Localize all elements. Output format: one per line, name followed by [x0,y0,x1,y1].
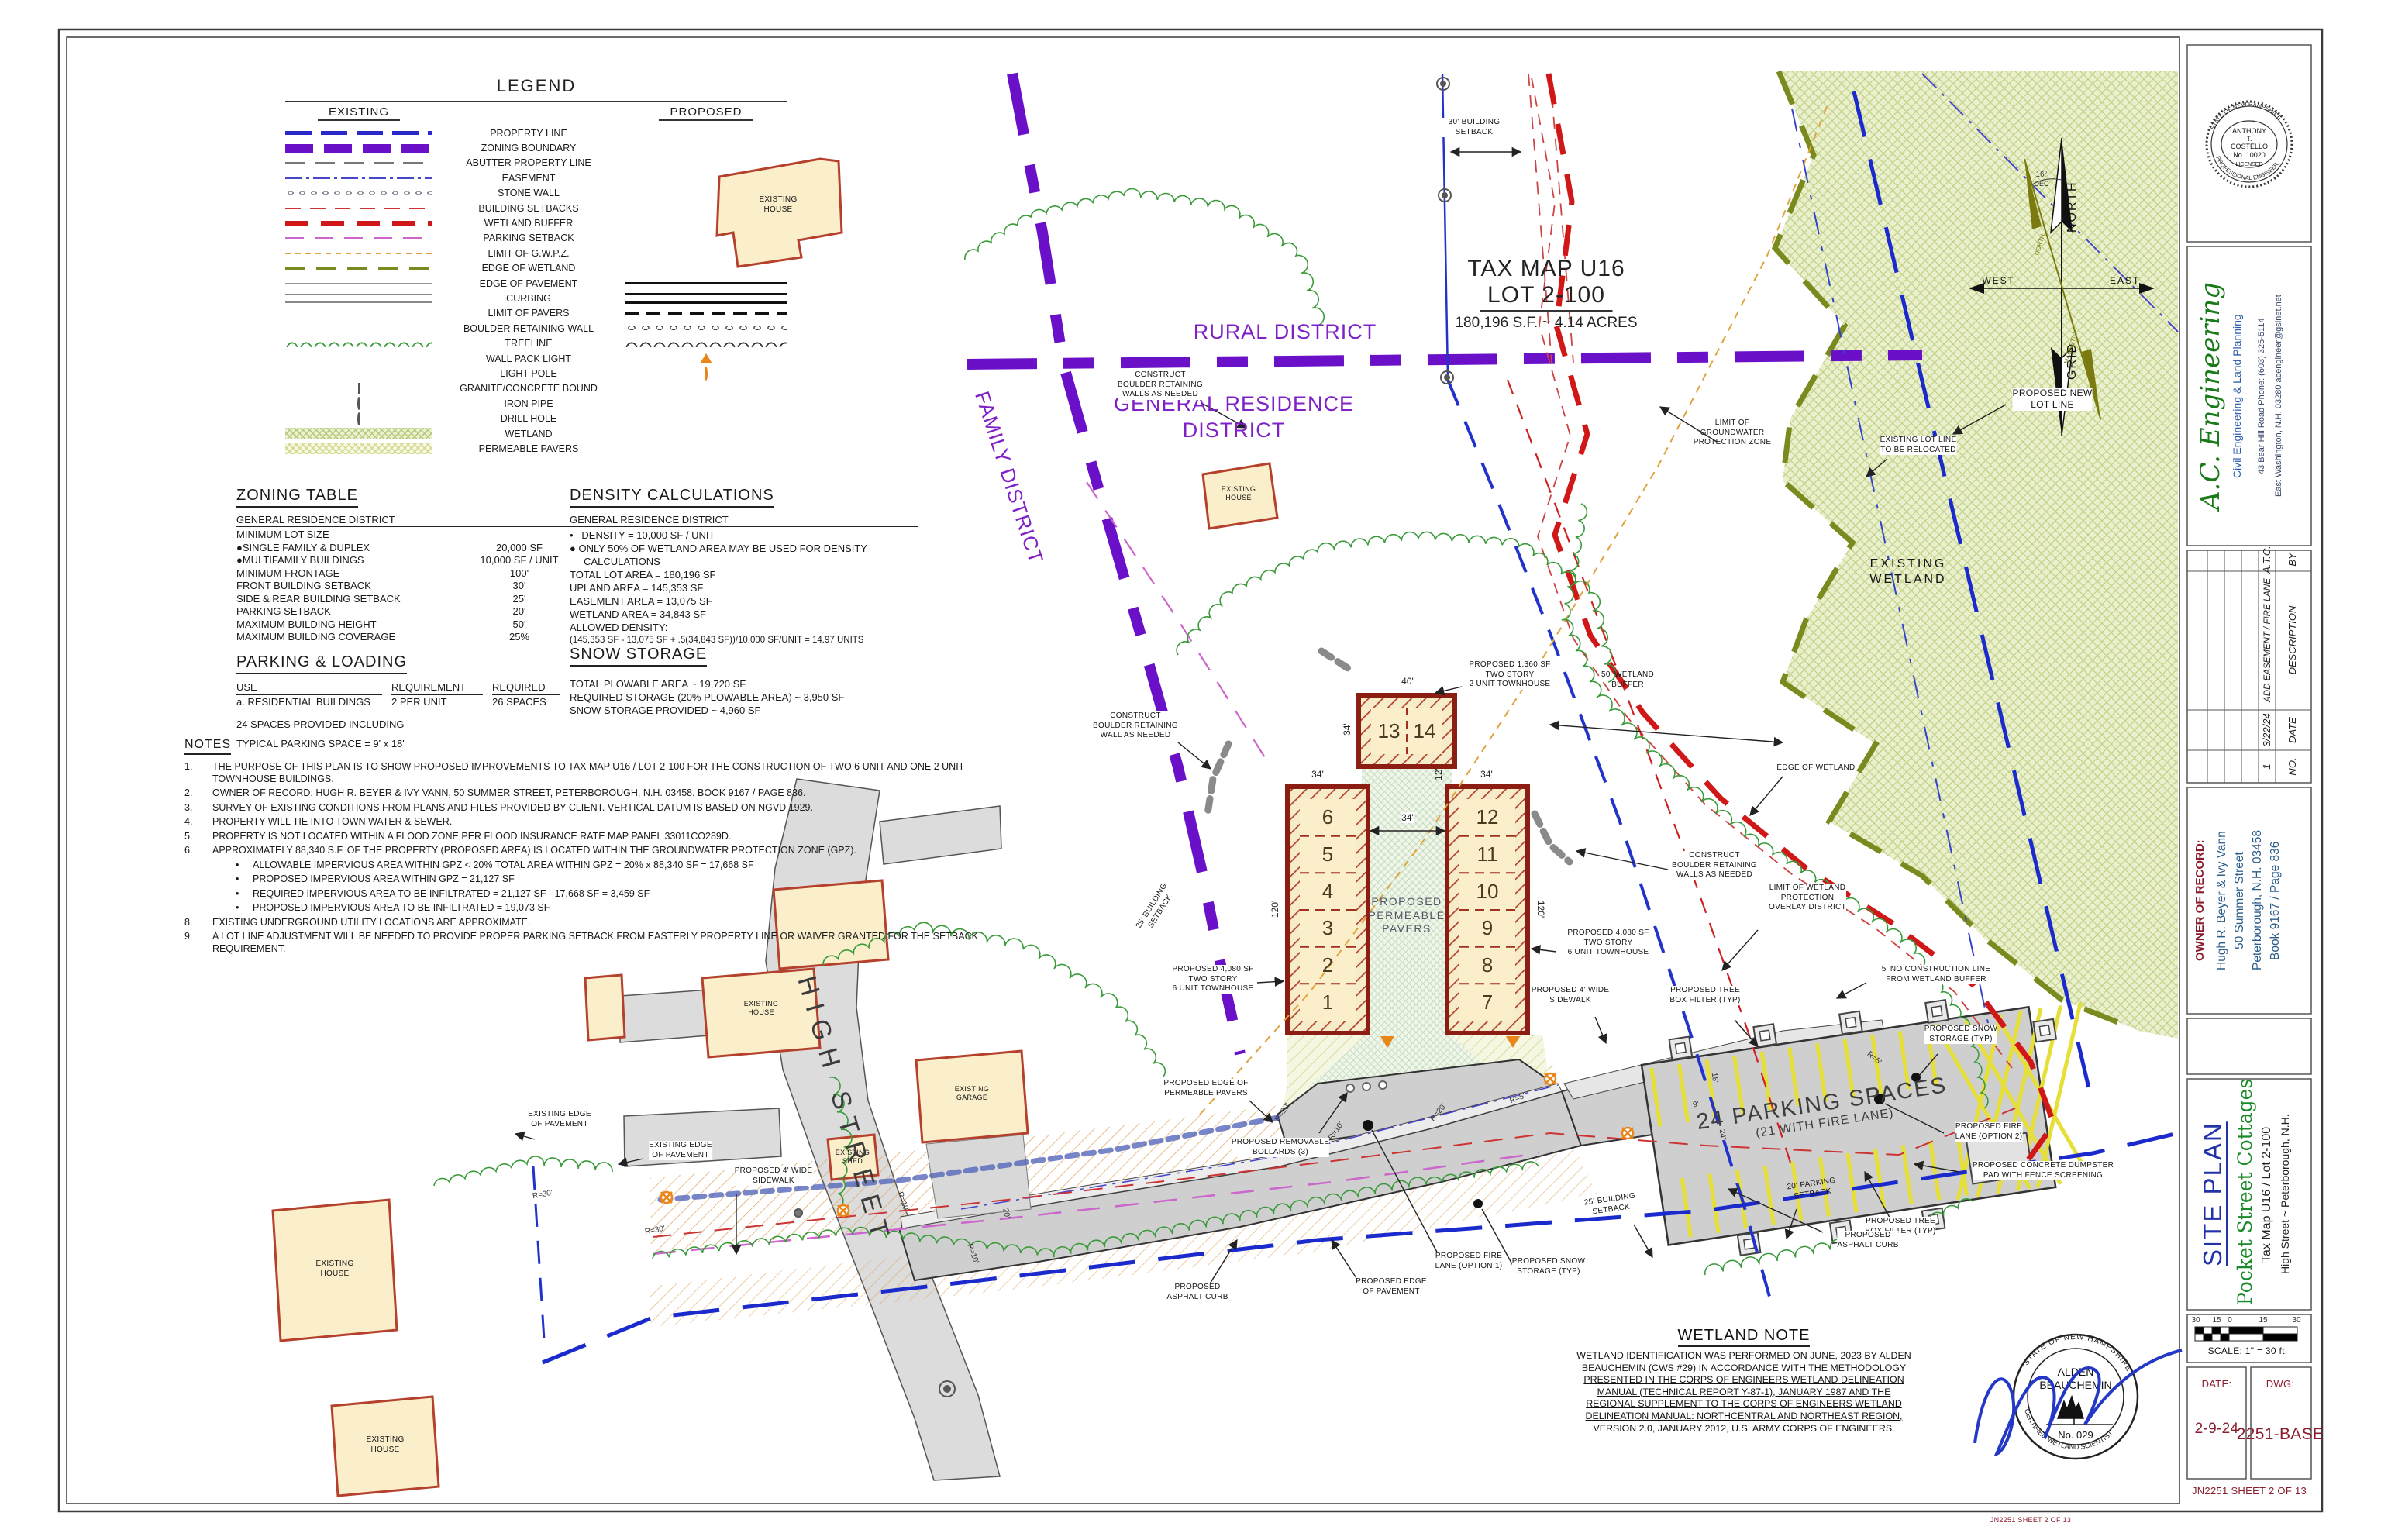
svg-text:DEC: DEC [2034,180,2049,188]
density-line: EASEMENT AREA = 13,075 SF [570,594,918,608]
legend-row: ABUTTER PROPERTY LINE [285,156,787,171]
zoning-row-value [461,529,577,542]
existing-house-label-4: EXISTING HOUSE [315,1259,353,1279]
unit-number: 1 [1300,984,1356,1021]
wetland-note-title: WETLAND NOTE [1678,1327,1811,1347]
edge-permeable-pavers-label: PROPOSED EDGE OF PERMEABLE PAVERS [1163,1079,1248,1098]
scale-bar [2195,1327,2297,1341]
legend-proposed-swatch [625,339,787,347]
notes: NOTES 1. THE PURPOSE OF THIS PLAN IS TO … [184,738,991,957]
legend-item-label: STONE WALL [432,188,625,198]
legend-item-label: LIGHT POLE [432,368,625,379]
scale-label: SCALE: 1" = 30 ft. [2208,1345,2288,1357]
svg-text:NO.: NO. [2286,757,2298,775]
proposed-edge-pavement-label: PROPOSED EDGE OF PAVEMENT [1356,1277,1427,1297]
pl-row-reqd: 26 SPACES [492,695,570,708]
density-line: • DENSITY = 10,000 SF / UNIT [570,529,918,542]
svg-text:NORTH: NORTH [2066,181,2079,233]
site-plan-sheet: 16° DEC NORTH GRID WEST EAST NORTH MAGNE… [0,0,2381,1540]
legend-row: ZONING BOUNDARY [285,140,787,155]
svg-text:3/22/24: 3/22/24 [2261,713,2272,746]
legend-row: TREELINE [285,336,787,350]
legend-item-label: PROPERTY LINE [432,128,625,139]
unit-number: 10 [1459,873,1515,910]
dim-18: 18' [1710,1072,1720,1083]
date-label: DATE: [2202,1378,2232,1390]
svg-text:ANTHONY: ANTHONY [2232,127,2266,135]
legend-row: DRILL HOLE [285,411,787,425]
legend-item-label: TREELINE [432,338,625,349]
svg-text:WEST: WEST [1982,275,2015,286]
zoning-row-label: PARKING SETBACK [236,605,461,618]
note-item: • PROPOSED IMPERVIOUS AREA TO BE INFILTR… [236,902,991,915]
unit-number: 8 [1459,947,1515,984]
zoning-row: SIDE & REAR BUILDING SETBACK 25' [236,593,577,606]
rural-district-label: RURAL DISTRICT [1194,319,1377,346]
wetland-note-line: DELINEATION MANUAL: NORTHCENTRAL AND NOR… [1527,1411,1961,1423]
wetland-note-line: PRESENTED IN THE CORPS OF ENGINEERS WETL… [1527,1374,1961,1387]
existing-house-label-3: EXISTING HOUSE [744,1000,778,1018]
building-c-units: 1314 [1371,708,1442,754]
legend-item-label: EASEMENT [432,173,625,184]
legend-existing-swatch [285,221,432,226]
legend-col-existing: EXISTING [318,105,400,121]
svg-text:16°: 16° [2035,171,2047,179]
svg-text:DATE: DATE [2286,717,2298,743]
tree-box-filter-label-a: PROPOSED TREE BOX FILTER (TYP) [1669,986,1740,1005]
unit-number: 3 [1300,910,1356,947]
zoning-district: GENERAL RESIDENCE DISTRICT [236,514,577,527]
no-construction-label: 5' NO CONSTRUCTION LINE FROM WETLAND BUF… [1882,965,1991,984]
sidewalk-label-b: PROPOSED 4' WIDE SIDEWALK [1532,986,1610,1005]
zoning-row-label: ●MULTIFAMILY BUILDINGS [236,554,461,567]
svg-text:1: 1 [2261,763,2272,769]
company-addr2: East Washington, N.H. 03280 acengineer@g… [2274,260,2286,532]
legend-row: EASEMENT [285,171,787,185]
unit-number: 11 [1459,836,1515,873]
asphalt-curb-label-a: PROPOSED ASPHALT CURB [1166,1283,1228,1302]
building-a-units: 654321 [1300,799,1356,1021]
dim-34-b: 34' [1480,769,1493,780]
svg-text:ADD EASEMENT / FIRE LANE: ADD EASEMENT / FIRE LANE [2263,578,2272,703]
pl-extra1: 24 SPACES PROVIDED INCLUDING [236,718,585,731]
owner-line: 50 Summer Street [2233,791,2251,1011]
legend-item-label: GRANITE/CONCRETE BOUND [432,383,625,394]
permeable-pavers-label: PROPOSED PERMEABLE PAVERS [1368,895,1445,936]
zoning-row-value: 20,000 SF [461,542,577,555]
pl-col-requirement: REQUIREMENT [391,680,483,695]
owner-heading: OWNER OF RECORD: [2193,791,2210,1011]
existing-wetland-label: EXISTING WETLAND [1869,556,1946,587]
legend-existing-swatch [358,383,360,394]
legend-item-label: CURBING [432,293,625,304]
svg-text:T.: T. [2246,135,2252,143]
owner-line: Peterborough, N.H. 03458 [2251,791,2269,1011]
snow-line: TOTAL PLOWABLE AREA ~ 19,720 SF [570,677,918,691]
legend-row: LIGHT POLE [285,366,787,381]
pl-col-use: USE [236,680,382,695]
legend-item-label: WETLAND BUFFER [432,218,625,229]
legend-existing-swatch [285,208,432,209]
setback30-label: 30' BUILDING SETBACK [1432,118,1517,137]
legend-row: LIMIT OF G.W.P.Z. [285,246,787,260]
legend-item-label: ZONING BOUNDARY [432,143,625,153]
svg-text:LICENSED: LICENSED [2235,162,2262,167]
legend-item-label: LIMIT OF PAVERS [432,308,625,319]
legend-row: EDGE OF PAVEMENT [285,276,787,291]
parking-loading-title: PARKING & LOADING [236,653,407,674]
unit-number: 7 [1459,984,1515,1021]
zoning-row-label: SIDE & REAR BUILDING SETBACK [236,593,461,606]
note-item: 9. A LOT LINE ADJUSTMENT WILL BE NEEDED … [184,931,991,955]
project-parcel: Tax Map U16 / Lot 2-100 [2260,1084,2277,1305]
zoning-row-value: 25% [461,631,577,644]
scale-m1: 30 [2191,1316,2200,1325]
zoning-row-label: FRONT BUILDING SETBACK [236,580,461,593]
building-b-units: 121110987 [1459,799,1515,1021]
legend-item-label: EDGE OF WETLAND [432,263,625,274]
svg-text:A.T.C.: A.T.C. [2261,546,2272,574]
project-name: Pocket Street Cottages [2234,1084,2257,1305]
legend-row: LIMIT OF PAVERS [285,306,787,321]
zoning-row-label: ●SINGLE FAMILY & DUPLEX [236,542,461,555]
sidewalk-label-a: PROPOSED 4' WIDE SIDEWALK [735,1166,813,1186]
existing-garage-label: EXISTING GARAGE [955,1085,989,1103]
legend-item-label: BUILDING SETBACKS [432,203,625,214]
pl-col-required: REQUIRED [492,680,560,695]
wetland-note-line: REGIONAL SUPPLEMENT TO THE CORPS OF ENGI… [1527,1398,1961,1411]
zoning-row-value: 10,000 SF / UNIT [461,554,577,567]
legend-row: WALL PACK LIGHT [285,351,787,366]
existing-edge-label-b: EXISTING EDGE OF PAVEMENT [649,1141,712,1160]
note-item: 2. OWNER OF RECORD: HUGH R. BEYER & IVY … [184,787,991,800]
dim-120-b: 120' [1535,901,1546,918]
legend-existing-swatch [285,253,432,254]
existing-lot-line-label: EXISTING LOT LINE TO BE RELOCATED [1880,436,1957,455]
legend-existing-swatch [285,237,432,239]
zoning-row: PARKING SETBACK 20' [236,605,577,618]
wetland-overlay-label: LIMIT OF WETLAND PROTECTION OVERLAY DIST… [1769,884,1846,913]
svg-text:No. 029: No. 029 [2058,1429,2093,1441]
existing-edge-label-a: EXISTING EDGE OF PAVEMENT [528,1110,591,1129]
scale-m4: 15 [2259,1316,2267,1325]
legend-proposed-swatch [625,293,787,304]
legend-item-label: ABUTTER PROPERTY LINE [432,157,625,168]
zoning-row-value: 50' [461,618,577,632]
wetland-note-line: VERSION 2.0, JANUARY 2012, U.S. ARMY COR… [1527,1423,1961,1435]
legend-item-label: IRON PIPE [432,398,625,409]
dim-120-a: 120' [1270,901,1280,918]
dim-34-a: 34' [1311,769,1324,780]
note-item: 8. EXISTING UNDERGROUND UTILITY LOCATION… [184,917,991,929]
dim-40: 40' [1401,676,1414,687]
legend-item-label: PERMEABLE PAVERS [432,443,625,454]
legend-row: PROPERTY LINE [285,126,787,140]
legend-proposed-swatch [625,324,787,332]
pl-row-use: a. RESIDENTIAL BUILDINGS [236,695,391,708]
company-name: A.C. Engineering [2195,256,2231,536]
legend-proposed-swatch [625,282,787,284]
legend-row: BOULDER RETAINING WALL [285,321,787,336]
dim-34-c: 34' [1342,723,1352,736]
owner-line: Book 9167 / Page 836 [2269,791,2286,1011]
dwg-value: 2251-BASE [2237,1425,2324,1445]
dim-34-mid: 34' [1401,812,1414,823]
density-district: GENERAL RESIDENCE DISTRICT [570,514,918,527]
unit-number: 6 [1300,799,1356,836]
density-line: ALLOWED DENSITY: [570,621,918,634]
zoning-row: FRONT BUILDING SETBACK 30' [236,580,577,593]
wetland-stamp: STATE OF NEW HAMPSHIRE CERTIFIED WETLAND… [1975,1333,2182,1459]
wetland-note-line: MANUAL (TECHNICAL REPORT Y-87-1), JANUAR… [1527,1387,1961,1399]
legend-existing-swatch [285,294,432,303]
note-item: 3. SURVEY OF EXISTING CONDITIONS FROM PL… [184,802,991,815]
townhouse6-label-a: PROPOSED 4,080 SF TWO STORY 6 UNIT TOWNH… [1567,928,1649,958]
date-value: 2-9-24 [2195,1420,2239,1438]
scale-m5: 30 [2292,1316,2300,1325]
svg-text:COSTELLO: COSTELLO [2231,143,2268,150]
legend-existing-swatch [285,443,432,454]
snow-line: SNOW STORAGE PROVIDED ~ 4,960 SF [570,704,918,717]
legend-row: WETLAND BUFFER [285,215,787,230]
pl-row-req: 2 PER UNIT [391,695,492,708]
zoning-row-label: MINIMUM FRONTAGE [236,567,461,581]
unit-number: 2 [1300,947,1356,984]
zoning-row-label: MINIMUM LOT SIZE [236,529,461,542]
zoning-row: ●MULTIFAMILY BUILDINGS 10,000 SF / UNIT [236,554,577,567]
boulder-wall-label-b: CONSTRUCT BOULDER RETAINING WALL AS NEED… [1093,711,1178,741]
legend-item-label: WALL PACK LIGHT [432,353,625,364]
unit-number: 9 [1459,910,1515,947]
dim-24: 24' [1718,1128,1728,1139]
dumpster-label: PROPOSED CONCRETE DUMPSTER PAD WITH FENC… [1973,1161,2114,1180]
legend-row: BUILDING SETBACKS [285,201,787,215]
company-tagline: Civil Engineering & Land Planning [2231,260,2246,532]
density-line: ● ONLY 50% OF WETLAND AREA MAY BE USED F… [570,542,918,555]
legend-title: LEGEND [285,76,787,96]
notes-title: NOTES [184,738,231,755]
legend-row: GRANITE/CONCRETE BOUND [285,381,787,396]
unit-number: 14 [1407,708,1442,754]
legend-row: WETLAND [285,426,787,441]
density-line: UPLAND AREA = 145,353 SF [570,581,918,594]
parking-loading: PARKING & LOADING USE REQUIREMENT REQUIR… [236,653,585,750]
legend-existing-swatch [285,144,432,153]
dim-9: 9' [1693,1101,1700,1110]
company-addr1: 43 Bear Hill Road Phone: (603) 325-5114 [2257,260,2269,532]
buffer50-label: 50' WETLAND BUFFER [1601,670,1654,690]
snow-line: REQUIRED STORAGE (20% PLOWABLE AREA) ~ 3… [570,691,918,704]
unit-number: 4 [1300,873,1356,910]
zoning-title: ZONING TABLE [236,487,358,508]
existing-house-label-5: EXISTING HOUSE [366,1435,404,1455]
zoning-row-value: 25' [461,593,577,606]
legend-col-proposed: PROPOSED [659,105,753,121]
unit-number: 12 [1459,799,1515,836]
zoning-row-label: MAXIMUM BUILDING COVERAGE [236,631,461,644]
zoning-row-value: 100' [461,567,577,581]
zoning-row: ●SINGLE FAMILY & DUPLEX 20,000 SF [236,542,577,555]
bollards-label: PROPOSED REMOVABLE BOLLARDS (3) [1232,1138,1329,1157]
fire-lane1-label: PROPOSED FIRE LANE (OPTION 1) [1435,1252,1503,1271]
zoning-row: MINIMUM FRONTAGE 100' [236,567,577,581]
svg-text:BY: BY [2286,552,2298,567]
unit-number: 13 [1371,708,1407,754]
zoning-row-label: MAXIMUM BUILDING HEIGHT [236,618,461,632]
fire-lane2-label: PROPOSED FIRE LANE (OPTION 2) [1955,1122,2023,1142]
note-item: 4. PROPERTY WILL TIE INTO TOWN WATER & S… [184,816,991,829]
edge-of-wetland-label: EDGE OF WETLAND [1776,763,1855,773]
legend-item-label: LIMIT OF G.W.P.Z. [432,248,625,259]
note-item: 1. THE PURPOSE OF THIS PLAN IS TO SHOW P… [184,761,991,785]
legend-existing-swatch [285,428,432,439]
unit-number: 5 [1300,836,1356,873]
snow-storage-label-a: PROPOSED SNOW STORAGE (TYP) [1924,1025,1997,1044]
svg-text:EAST: EAST [2110,275,2140,286]
zoning-row: MAXIMUM BUILDING HEIGHT 50' [236,618,577,632]
legend-existing-swatch [285,177,432,180]
legend-row: IRON PIPE [285,396,787,411]
legend-existing-swatch [285,131,432,135]
legend-existing-swatch [285,190,432,197]
owner-line: Hugh R. Beyer & Ivy Vann [2215,791,2233,1011]
note-item: • PROPOSED IMPERVIOUS AREA WITHIN GPZ = … [236,873,991,886]
wetland-note-line: WETLAND IDENTIFICATION WAS PERFORMED ON … [1527,1350,1961,1363]
wetland-note: WETLAND NOTE WETLAND IDENTIFICATION WAS … [1527,1327,1961,1435]
sheet-footer-tiny: JN2251 SHEET 2 OF 13 [1990,1516,2071,1524]
density-line: TOTAL LOT AREA = 180,196 SF [570,568,918,581]
project-location: High Street ~ Peterborough, N.H. [2279,1084,2294,1305]
legend-proposed-swatch [625,312,787,315]
snow-title: SNOW STORAGE [570,646,707,667]
note-item: • ALLOWABLE IMPERVIOUS AREA WITHIN GPZ <… [236,860,991,872]
scale-m2: 15 [2212,1316,2221,1325]
legend-item-label: EDGE OF PAVEMENT [432,278,625,289]
zoning-row: MINIMUM LOT SIZE [236,529,577,542]
legend-row: CURBING [285,291,787,305]
legend-item-label: WETLAND [432,429,625,439]
zoning-row-value: 30' [461,580,577,593]
owner-lines: Hugh R. Beyer & Ivy Vann50 Summer Street… [2215,791,2286,1011]
boulder-wall-label-c: CONSTRUCT BOULDER RETAINING WALLS AS NEE… [1672,851,1757,880]
note-item: 6. APPROXIMATELY 88,340 S.F. OF THE PROP… [184,845,991,857]
zoning-row-value: 20' [461,605,577,618]
legend-item-label: BOULDER RETAINING WALL [432,323,625,334]
dim-12: 12' [1433,768,1444,780]
snow-storage-label-b: PROPOSED SNOW STORAGE (TYP) [1512,1257,1585,1276]
parcel-title: TAX MAP U16 LOT 2-100 180,196 S.F. ~ 4.1… [1455,256,1637,332]
legend-existing-swatch [285,339,432,347]
dwg-label: DWG: [2266,1378,2295,1390]
legend-existing-swatch [285,267,432,270]
svg-text:DESCRIPTION: DESCRIPTION [2286,605,2298,674]
existing-house-label-2: EXISTING HOUSE [1222,485,1256,503]
legend-proposed-swatch [700,353,712,363]
legend-existing-swatch [285,283,432,284]
svg-text:No. 10020: No. 10020 [2233,151,2266,159]
sheet-title: SITE PLAN [2198,1084,2229,1305]
legend-existing-swatch [285,162,432,164]
legend-row: EDGE OF WETLAND [285,261,787,276]
proposed-new-lot-line-label: PROPOSED NEW LOT LINE [2013,388,2093,411]
wetland-note-line: BEAUCHEMIN (CWS #29) IN ACCORDANCE WITH … [1527,1363,1961,1375]
boulder-wall-label-a: CONSTRUCT BOULDER RETAINING WALLS AS NEE… [1118,370,1203,400]
legend-row: STONE WALL [285,186,787,201]
note-item: • REQUIRED IMPERVIOUS AREA TO BE INFILTR… [236,888,991,901]
legend-item-label: PARKING SETBACK [432,233,625,243]
legend-items: PROPERTY LINE ZONING BOUNDARY ABUTTER PR… [285,126,787,456]
dim-20: 20' [1001,1208,1011,1219]
sheet-footer: JN2251 SHEET 2 OF 13 [2192,1485,2307,1497]
zoning-row: MAXIMUM BUILDING COVERAGE 25% [236,631,577,644]
legend-existing-swatch [357,412,360,425]
density-calcs: DENSITY CALCULATIONS GENERAL RESIDENCE D… [570,487,918,647]
legend-item-label: DRILL HOLE [432,413,625,424]
legend-existing-swatch [357,397,360,410]
legend-proposed-swatch [705,367,708,381]
townhouse2-label: PROPOSED 1,360 SF TWO STORY 2 UNIT TOWNH… [1469,660,1550,690]
density-title: DENSITY CALCULATIONS [570,487,774,508]
legend: LEGEND EXISTING . PROPOSED PROPERTY LINE… [285,76,787,456]
note-item: 5. PROPERTY IS NOT LOCATED WITHIN A FLOO… [184,831,991,843]
townhouse6-label-b: PROPOSED 4,080 SF TWO STORY 6 UNIT TOWNH… [1172,965,1253,994]
density-line: CALCULATIONS [570,555,918,568]
existing-house-label-1: EXISTING HOUSE [759,195,797,215]
asphalt-curb-label-b: PROPOSED ASPHALT CURB [1837,1231,1898,1250]
density-line: WETLAND AREA = 34,843 SF [570,608,918,621]
scale-m3: 0 [2228,1316,2232,1325]
gwpz-label: LIMIT OF GROUNDWATER PROTECTION ZONE [1694,419,1772,448]
zoning-table: ZONING TABLE GENERAL RESIDENCE DISTRICT … [236,487,577,644]
legend-row: PARKING SETBACK [285,231,787,246]
snow-storage: SNOW STORAGE TOTAL PLOWABLE AREA ~ 19,72… [570,646,918,717]
legend-row: PERMEABLE PAVERS [285,441,787,456]
